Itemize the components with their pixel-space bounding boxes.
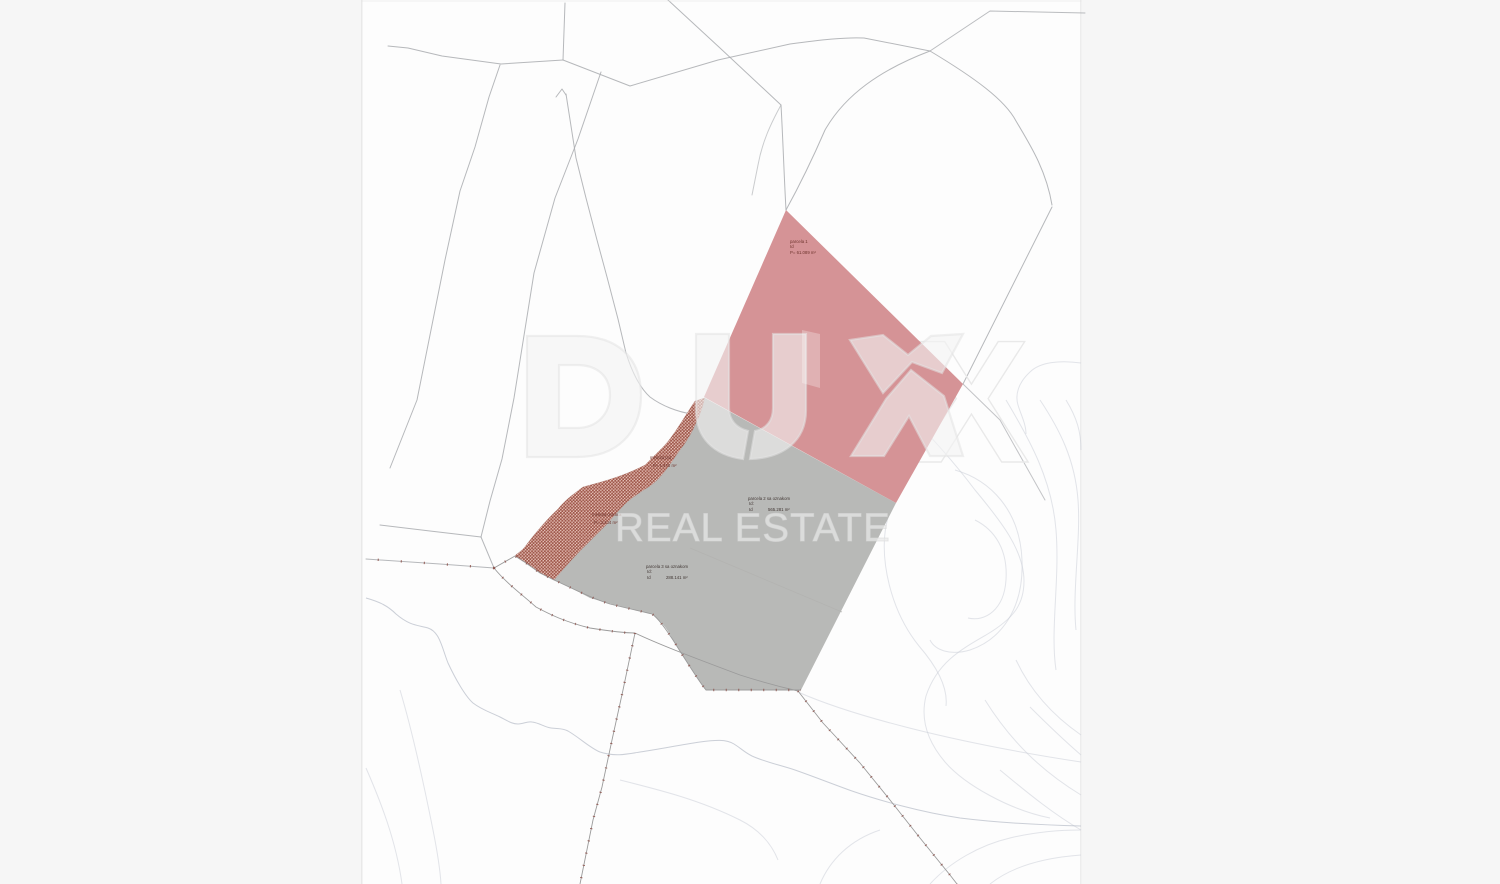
svg-text:P= 61.089 m²: P= 61.089 m² xyxy=(790,250,816,255)
svg-text:P= 1.475 m²: P= 1.475 m² xyxy=(653,463,677,468)
svg-text:REAL ESTATE: REAL ESTATE xyxy=(615,506,891,550)
svg-text:Id: Id xyxy=(790,244,794,249)
svg-text:parcela 3 sa oznakom: parcela 3 sa oznakom xyxy=(646,564,688,569)
svg-text:Id:: Id: xyxy=(647,569,652,574)
svg-text:mekota put: mekota put xyxy=(650,455,672,460)
svg-text:288.141 m²: 288.141 m² xyxy=(666,575,688,580)
svg-text:parcela 2 sa oznakom: parcela 2 sa oznakom xyxy=(748,496,790,501)
svg-text:Id: Id xyxy=(647,575,651,580)
